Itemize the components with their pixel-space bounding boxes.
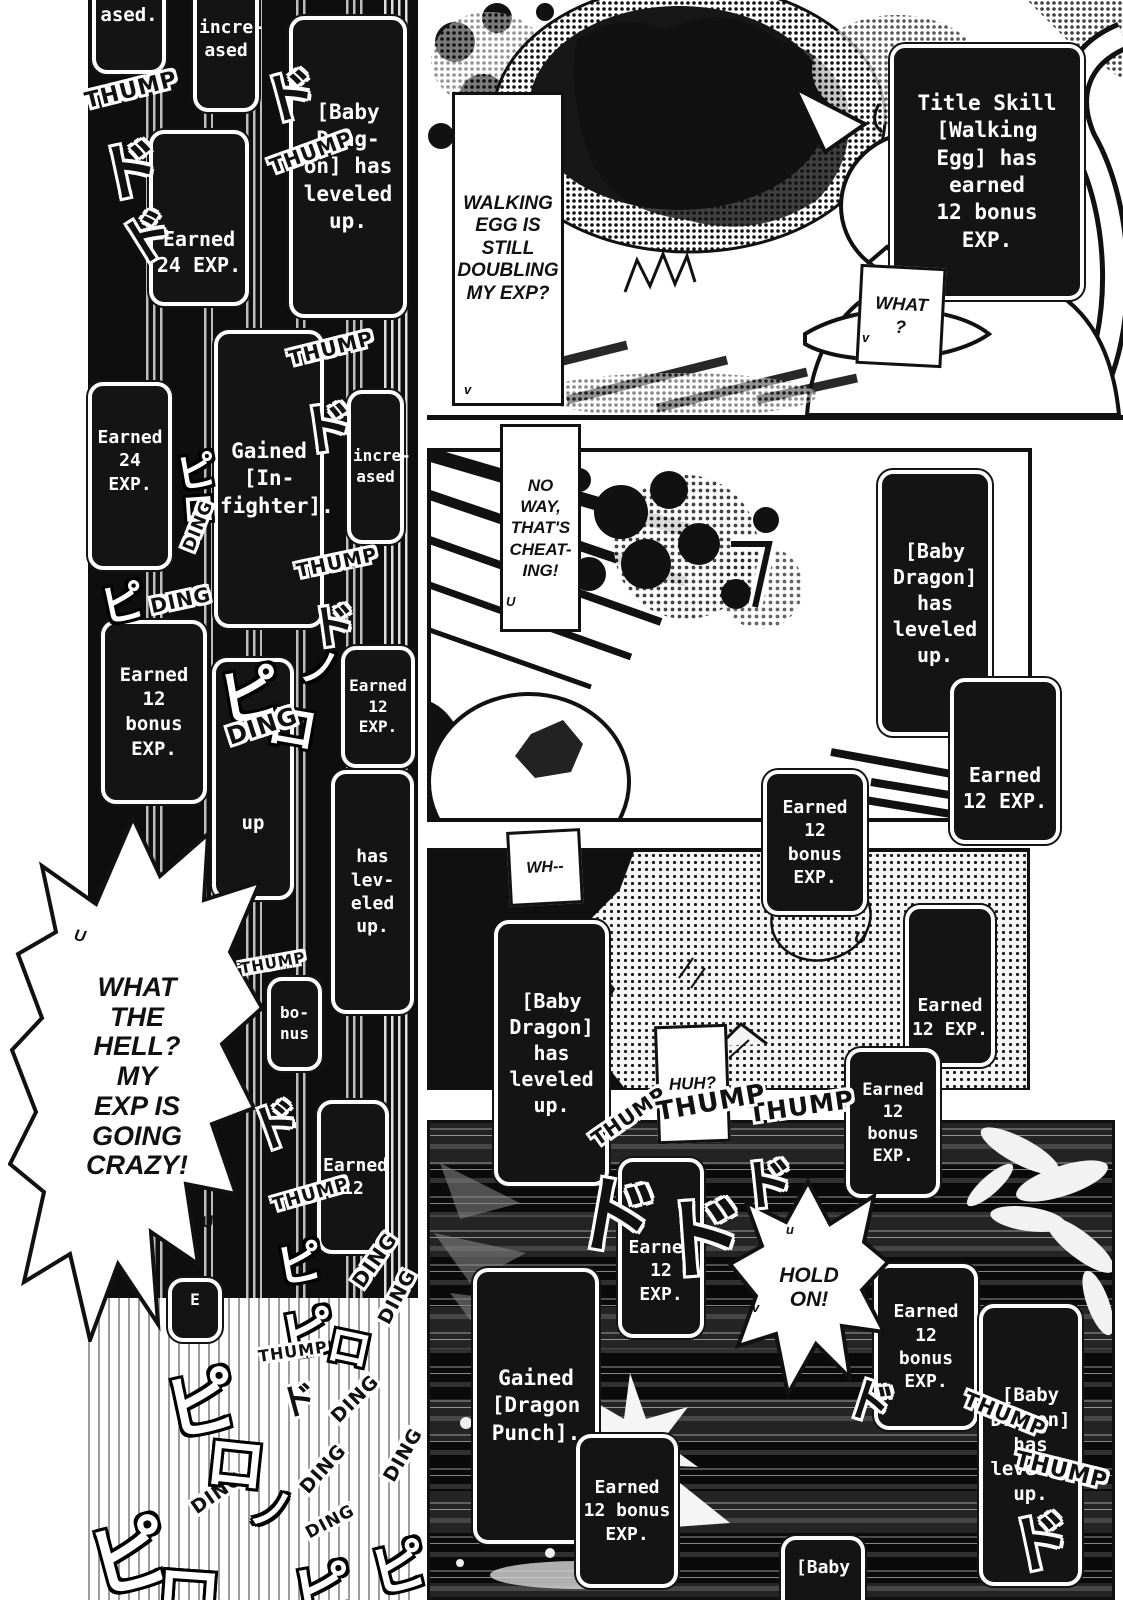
status-box-earned-12-bonus-left: Earned 12 bonus EXP. (101, 620, 207, 804)
status-box-earned-12-bonus-p2: Earned 12 bonus EXP. (763, 770, 867, 915)
status-box-earned-12-exp-p3: Earned 12 EXP. (905, 905, 995, 1067)
sfx-do-10: ド (654, 1165, 752, 1298)
status-box-increased-2: incre- ased (347, 390, 404, 544)
status-box-earned-24-exp-2: Earned 24 EXP. (88, 382, 172, 570)
tick-u-1: U (73, 927, 88, 947)
status-box-gained-infighter: Gained [In- fighter]. (214, 330, 324, 628)
status-box-ased-fragment: ased. (92, 0, 166, 74)
status-box-has-leveled-fragment: has lev- eled up. (331, 770, 414, 1014)
bubble-no-way-text: NO WAY, THAT'S CHEAT- ING! (503, 475, 578, 581)
bubble-walking-egg-text: WALKING EGG IS STILL DOUBLING MY EXP? (455, 193, 561, 305)
sfx-ro-5: ロ (153, 1540, 227, 1600)
bubble-wh-text: WH-- (511, 857, 580, 879)
tick-v-2: v (862, 330, 869, 345)
status-box-title-skill-walking-egg: Title Skill [Walking Egg] has earned 12 … (890, 44, 1084, 300)
tick-u-2: U (201, 1213, 215, 1232)
status-box-earned-12-exp-left: Earned 12 EXP. (341, 646, 415, 768)
status-box-earned-12-bonus-p4b: Earned 12 bonus EXP. (576, 1434, 678, 1588)
status-box-bonus-fragment: bo- nus (267, 977, 322, 1071)
bubble-walking-egg: WALKING EGG IS STILL DOUBLING MY EXP? (452, 92, 564, 406)
tick-v-3: v (752, 1300, 759, 1315)
bubble-what-the-hell: WHAT THE HELL? MY EXP IS GOING CRAZY! (8, 812, 266, 1342)
sfx-no-1: ノ (296, 633, 345, 696)
sfx-do-4: ド (295, 381, 360, 467)
bubble-what-text: WHAT ? (860, 291, 942, 342)
status-box-earned-12-fragment: Earned 12 (317, 1100, 389, 1254)
status-box-earned-12-bonus-p3: Earned 12 bonus EXP. (846, 1048, 940, 1198)
status-box-earned-12-exp-p2: Earned 12 EXP. (950, 678, 1060, 844)
tick-v-1: v (464, 382, 471, 397)
manga-page: WALKING EGG IS STILL DOUBLING MY EXP? WH… (0, 0, 1123, 1600)
bubble-what: WHAT ? (855, 264, 946, 368)
bubble-what-the-hell-text: WHAT THE HELL? MY EXP IS GOING CRAZY! (8, 812, 266, 1342)
status-box-baby-fragment: [Baby (781, 1536, 865, 1600)
bubble-wh: WH-- (506, 828, 584, 907)
tick-u-3: U (506, 594, 515, 609)
tick-u-5: u (786, 1222, 794, 1237)
status-box-increased-top: incre- ased (193, 0, 259, 112)
